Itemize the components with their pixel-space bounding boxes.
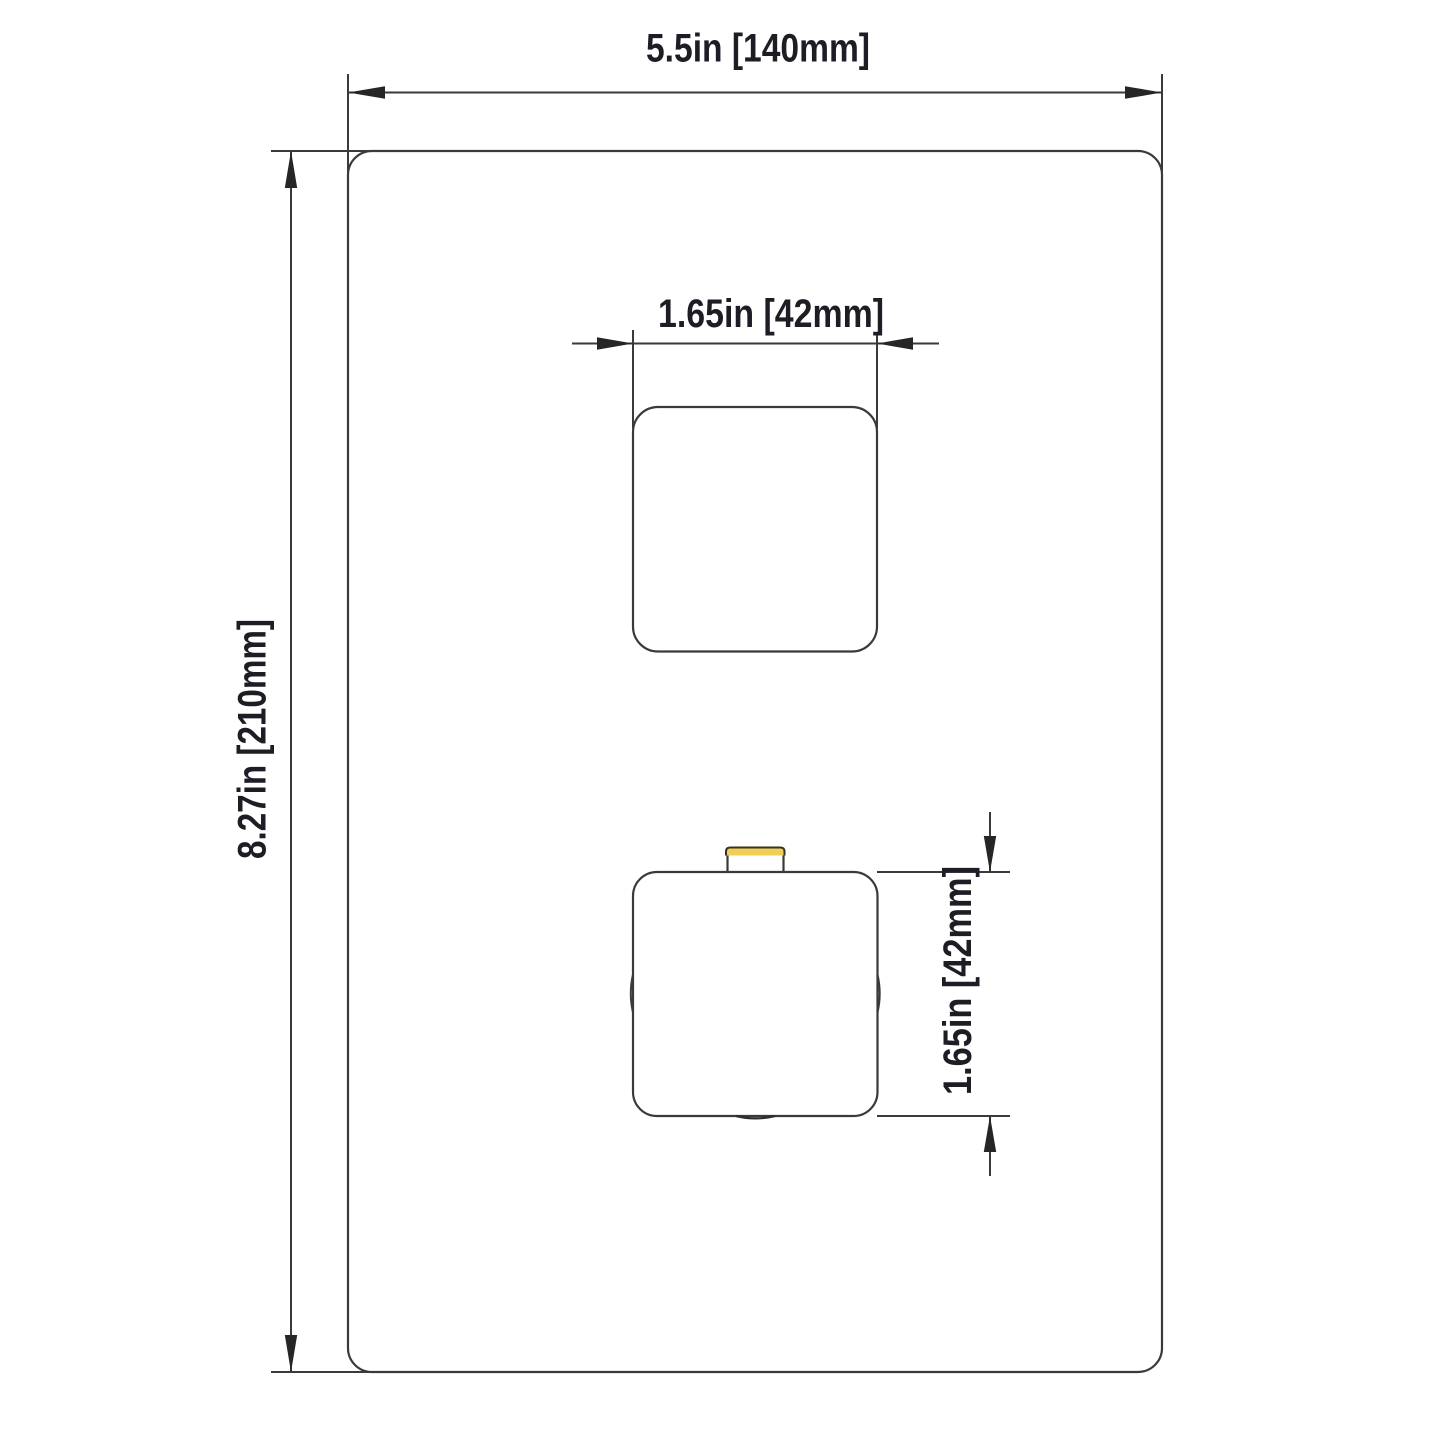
svg-text:8.27in [210mm]: 8.27in [210mm] bbox=[231, 619, 275, 859]
svg-text:5.5in [140mm]: 5.5in [140mm] bbox=[646, 27, 870, 71]
svg-text:1.65in [42mm]: 1.65in [42mm] bbox=[658, 292, 884, 336]
svg-text:1.65in [42mm]: 1.65in [42mm] bbox=[936, 866, 980, 1095]
